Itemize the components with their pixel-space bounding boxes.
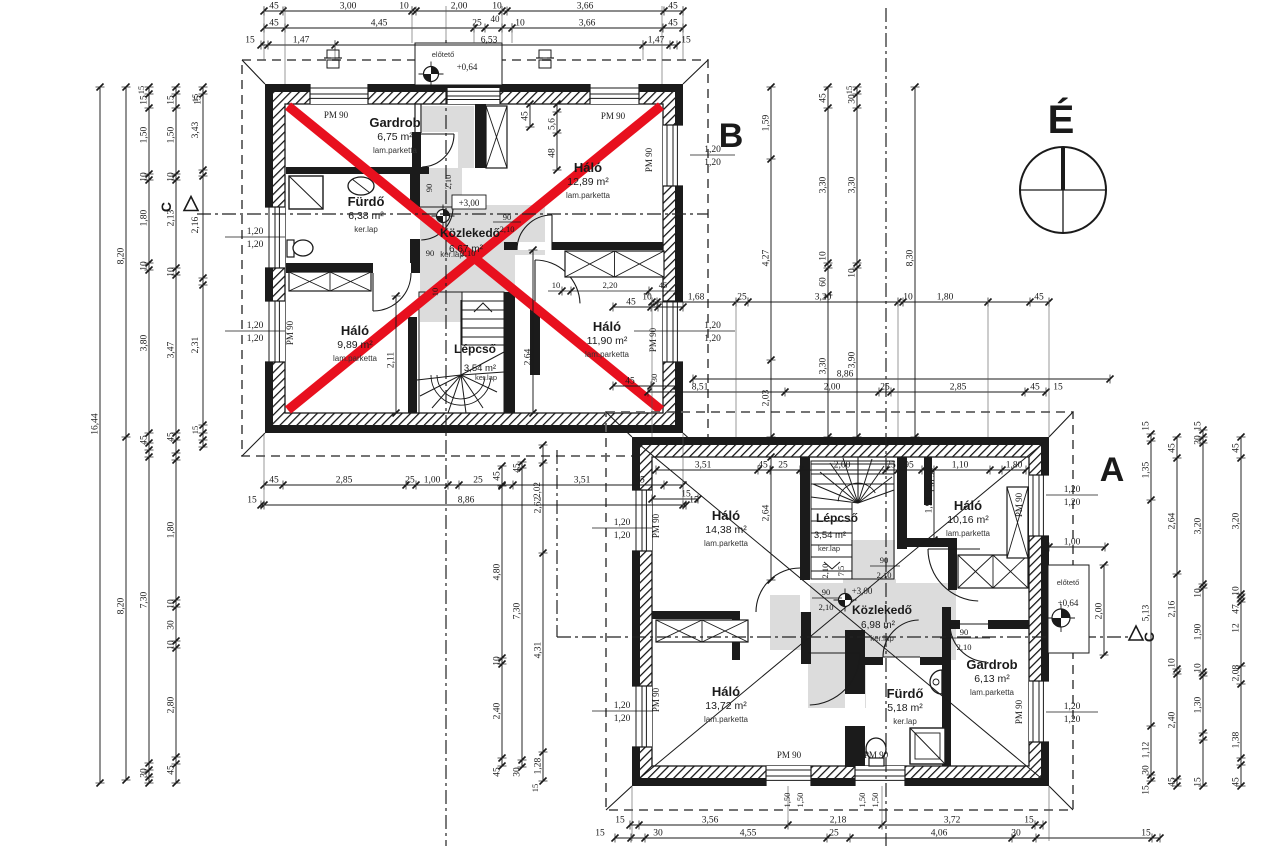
svg-text:lam.parketta: lam.parketta xyxy=(704,715,749,724)
svg-text:1,20: 1,20 xyxy=(1064,715,1081,725)
svg-text:10: 10 xyxy=(493,656,503,666)
svg-text:1,20: 1,20 xyxy=(1064,498,1081,508)
svg-text:2,31: 2,31 xyxy=(191,336,201,353)
svg-text:45: 45 xyxy=(269,19,279,29)
svg-text:1,50: 1,50 xyxy=(857,793,867,808)
svg-text:3,54 m²: 3,54 m² xyxy=(814,530,846,541)
svg-text:30: 30 xyxy=(649,374,659,383)
svg-text:1,20: 1,20 xyxy=(704,145,721,155)
svg-text:1,10: 1,10 xyxy=(952,461,969,471)
svg-text:1,00: 1,00 xyxy=(424,476,441,486)
svg-text:15: 15 xyxy=(190,426,200,435)
svg-text:45: 45 xyxy=(1168,777,1178,787)
svg-text:PM 90: PM 90 xyxy=(651,513,661,538)
svg-text:Gardrob: Gardrob xyxy=(966,657,1017,672)
svg-text:Háló: Háló xyxy=(593,319,621,334)
svg-text:2,02: 2,02 xyxy=(532,482,542,498)
svg-text:3,72: 3,72 xyxy=(944,816,961,826)
svg-text:PM 90: PM 90 xyxy=(777,750,802,760)
svg-text:8,20: 8,20 xyxy=(117,597,127,614)
svg-text:2,10: 2,10 xyxy=(500,224,515,234)
svg-text:Fürdő: Fürdő xyxy=(887,686,924,701)
svg-text:4,31: 4,31 xyxy=(534,641,544,658)
svg-text:30: 30 xyxy=(848,94,858,104)
svg-text:1,20: 1,20 xyxy=(704,321,721,331)
svg-text:1,20: 1,20 xyxy=(614,714,631,724)
svg-text:45: 45 xyxy=(1030,383,1040,393)
svg-text:5,13: 5,13 xyxy=(1142,604,1152,621)
svg-text:1,50: 1,50 xyxy=(795,793,805,808)
svg-text:3,66: 3,66 xyxy=(579,19,596,29)
svg-text:4,45: 4,45 xyxy=(371,19,388,29)
svg-text:1,80: 1,80 xyxy=(140,209,150,226)
svg-text:45: 45 xyxy=(819,93,829,103)
svg-text:ker.lap: ker.lap xyxy=(475,373,497,382)
svg-text:6,13 m²: 6,13 m² xyxy=(974,673,1010,685)
svg-text:45: 45 xyxy=(626,298,636,308)
svg-text:1,59: 1,59 xyxy=(762,114,772,131)
svg-text:1,50: 1,50 xyxy=(782,793,792,808)
svg-text:2,10: 2,10 xyxy=(461,248,476,258)
svg-text:10: 10 xyxy=(848,268,858,278)
svg-text:8,30: 8,30 xyxy=(906,249,916,266)
svg-text:Háló: Háló xyxy=(954,498,982,513)
svg-text:PM 90: PM 90 xyxy=(926,467,936,492)
svg-text:Lépcső: Lépcső xyxy=(816,511,858,525)
svg-text:Lépcső: Lépcső xyxy=(454,342,496,356)
svg-text:10,16 m²: 10,16 m² xyxy=(947,514,989,526)
svg-text:lam.parketta: lam.parketta xyxy=(704,539,749,548)
svg-text:2,10: 2,10 xyxy=(957,642,972,652)
svg-text:45: 45 xyxy=(1034,293,1044,303)
svg-text:45: 45 xyxy=(659,280,668,290)
svg-text:2,18: 2,18 xyxy=(830,816,847,826)
svg-text:1,00: 1,00 xyxy=(1064,538,1081,548)
svg-text:1,20: 1,20 xyxy=(247,240,264,250)
svg-text:3,51: 3,51 xyxy=(574,476,591,486)
svg-text:25: 25 xyxy=(886,461,896,471)
svg-text:1,30: 1,30 xyxy=(1194,696,1204,713)
svg-text:10: 10 xyxy=(1194,588,1204,598)
svg-text:45: 45 xyxy=(269,2,279,12)
svg-text:1,20: 1,20 xyxy=(1064,702,1081,712)
svg-text:1,20: 1,20 xyxy=(704,158,721,168)
svg-text:45: 45 xyxy=(1232,443,1242,453)
svg-text:lam.parketta: lam.parketta xyxy=(946,529,991,538)
svg-text:10: 10 xyxy=(167,599,177,609)
svg-text:48: 48 xyxy=(548,148,558,158)
svg-text:PM 90: PM 90 xyxy=(644,147,654,172)
svg-text:7,5: 7,5 xyxy=(836,566,846,577)
svg-text:3,20: 3,20 xyxy=(815,293,832,303)
svg-text:2,62: 2,62 xyxy=(534,496,544,513)
svg-text:45: 45 xyxy=(1232,777,1242,787)
svg-text:15: 15 xyxy=(615,816,625,826)
svg-text:2,11: 2,11 xyxy=(387,352,397,369)
svg-text:Közlekedő: Közlekedő xyxy=(852,603,912,617)
svg-text:30: 30 xyxy=(1142,765,1152,775)
svg-text:3,90: 3,90 xyxy=(848,351,858,368)
svg-text:2,20: 2,20 xyxy=(603,280,618,290)
svg-text:45: 45 xyxy=(167,432,177,442)
svg-text:2,10: 2,10 xyxy=(443,175,453,190)
svg-text:1,20: 1,20 xyxy=(614,701,631,711)
svg-text:3,30: 3,30 xyxy=(819,357,829,374)
svg-text:10: 10 xyxy=(399,2,409,12)
svg-text:10: 10 xyxy=(167,640,177,650)
svg-text:1,90: 1,90 xyxy=(925,496,935,513)
svg-text:60: 60 xyxy=(819,277,829,287)
svg-text:ker.lap: ker.lap xyxy=(870,634,894,643)
svg-text:3,56: 3,56 xyxy=(702,816,719,826)
svg-text:5,18 m²: 5,18 m² xyxy=(887,702,923,714)
svg-text:C: C xyxy=(1141,632,1157,642)
svg-text:10: 10 xyxy=(819,251,829,261)
svg-text:Háló: Háló xyxy=(341,323,369,338)
svg-text:90: 90 xyxy=(426,248,435,258)
svg-text:25: 25 xyxy=(405,476,415,486)
svg-text:1,50: 1,50 xyxy=(870,793,880,808)
svg-text:30: 30 xyxy=(653,829,663,839)
svg-text:2,80: 2,80 xyxy=(167,696,177,713)
svg-text:8,86: 8,86 xyxy=(458,496,475,506)
svg-text:45: 45 xyxy=(758,461,768,471)
svg-text:1,38: 1,38 xyxy=(1232,731,1242,748)
svg-text:1,20: 1,20 xyxy=(1064,485,1081,495)
svg-text:10: 10 xyxy=(492,2,502,12)
svg-text:10: 10 xyxy=(515,19,525,29)
svg-text:15: 15 xyxy=(167,95,177,105)
svg-text:1,12: 1,12 xyxy=(1142,741,1152,758)
svg-text:10: 10 xyxy=(903,293,913,303)
svg-text:2,00: 2,00 xyxy=(834,461,851,471)
svg-text:10: 10 xyxy=(167,267,177,277)
svg-text:15: 15 xyxy=(689,496,699,506)
svg-text:1,28: 1,28 xyxy=(534,757,544,774)
svg-text:15: 15 xyxy=(1194,421,1204,431)
svg-text:6,53: 6,53 xyxy=(481,36,498,46)
svg-text:2,13: 2,13 xyxy=(167,209,177,226)
svg-text:10: 10 xyxy=(1232,586,1242,596)
svg-text:4,06: 4,06 xyxy=(931,829,948,839)
svg-text:15: 15 xyxy=(136,86,146,95)
svg-text:1,20: 1,20 xyxy=(704,334,721,344)
svg-text:PM 90: PM 90 xyxy=(285,320,295,345)
svg-text:3,20: 3,20 xyxy=(1232,512,1242,529)
svg-text:4,55: 4,55 xyxy=(740,829,757,839)
svg-text:2,00: 2,00 xyxy=(1095,602,1105,619)
svg-text:10: 10 xyxy=(140,172,150,182)
svg-text:30: 30 xyxy=(1011,829,1021,839)
svg-text:PM 90: PM 90 xyxy=(601,111,626,121)
svg-text:1,50: 1,50 xyxy=(140,126,150,143)
svg-text:30: 30 xyxy=(1194,435,1204,445)
svg-text:7,30: 7,30 xyxy=(140,591,150,608)
svg-text:2,00: 2,00 xyxy=(451,2,468,12)
svg-text:15: 15 xyxy=(1053,383,1063,393)
svg-text:10: 10 xyxy=(552,280,561,290)
svg-text:47: 47 xyxy=(1232,604,1242,614)
svg-text:16,44: 16,44 xyxy=(91,413,101,435)
svg-text:előtető: előtető xyxy=(1057,578,1080,587)
svg-text:2,08: 2,08 xyxy=(1232,664,1242,681)
svg-text:lam.parketta: lam.parketta xyxy=(373,146,418,155)
svg-text:15: 15 xyxy=(1194,777,1204,787)
svg-text:45: 45 xyxy=(493,471,503,481)
svg-text:45: 45 xyxy=(521,111,531,121)
svg-text:15: 15 xyxy=(140,95,150,105)
svg-text:11,90 m²: 11,90 m² xyxy=(587,335,628,347)
svg-text:lam.parketta: lam.parketta xyxy=(333,354,378,363)
svg-text:2,85: 2,85 xyxy=(950,383,967,393)
svg-text:2,10: 2,10 xyxy=(819,602,834,612)
svg-text:90: 90 xyxy=(880,555,889,565)
svg-text:45: 45 xyxy=(493,767,503,777)
svg-text:45: 45 xyxy=(668,2,678,12)
svg-text:+3,00: +3,00 xyxy=(852,586,873,596)
svg-text:1,20: 1,20 xyxy=(247,334,264,344)
svg-text:1,20: 1,20 xyxy=(614,531,631,541)
svg-text:2,64: 2,64 xyxy=(762,504,772,521)
svg-text:Háló: Háló xyxy=(574,160,602,175)
svg-text:3,30: 3,30 xyxy=(819,176,829,193)
svg-text:12: 12 xyxy=(1232,623,1242,633)
svg-text:7,30: 7,30 xyxy=(513,602,523,619)
svg-text:6,75 m²: 6,75 m² xyxy=(377,131,413,143)
svg-text:6,98 m²: 6,98 m² xyxy=(861,620,896,631)
svg-text:1,80: 1,80 xyxy=(937,293,954,303)
svg-text:4,27: 4,27 xyxy=(762,249,772,266)
svg-text:2,64: 2,64 xyxy=(1168,512,1178,529)
svg-text:45: 45 xyxy=(635,476,645,486)
svg-text:90: 90 xyxy=(960,627,969,637)
svg-text:1,68: 1,68 xyxy=(688,293,705,303)
svg-text:3,66: 3,66 xyxy=(577,2,594,12)
svg-text:45: 45 xyxy=(1168,443,1178,453)
svg-text:15: 15 xyxy=(844,86,854,95)
svg-text:Háló: Háló xyxy=(712,508,740,523)
svg-text:PM 90: PM 90 xyxy=(1014,699,1024,724)
svg-text:45: 45 xyxy=(167,765,177,775)
svg-text:Háló: Háló xyxy=(712,684,740,699)
svg-text:1,90: 1,90 xyxy=(1194,623,1204,640)
svg-text:25: 25 xyxy=(778,461,788,471)
svg-text:2,64: 2,64 xyxy=(524,348,534,365)
svg-text:15: 15 xyxy=(595,829,605,839)
svg-text:1,50: 1,50 xyxy=(167,126,177,143)
svg-text:45: 45 xyxy=(269,476,279,486)
svg-text:45: 45 xyxy=(140,435,150,445)
svg-text:A: A xyxy=(1100,451,1125,489)
svg-text:PM 90: PM 90 xyxy=(1014,492,1024,517)
svg-text:5,6: 5,6 xyxy=(548,118,558,130)
svg-text:+0,64: +0,64 xyxy=(457,62,478,72)
svg-text:90: 90 xyxy=(424,184,434,193)
svg-text:2,10: 2,10 xyxy=(820,564,830,579)
svg-text:lam.parketta: lam.parketta xyxy=(585,350,630,359)
svg-text:ker.lap: ker.lap xyxy=(354,225,378,234)
svg-text:2,16: 2,16 xyxy=(1168,600,1178,617)
svg-text:15: 15 xyxy=(1142,785,1152,795)
svg-text:ker.lap: ker.lap xyxy=(818,544,840,553)
svg-text:90: 90 xyxy=(822,587,831,597)
svg-text:14,38 m²: 14,38 m² xyxy=(705,524,747,536)
svg-text:1,80: 1,80 xyxy=(167,521,177,538)
svg-text:30: 30 xyxy=(167,620,177,630)
svg-text:2,16: 2,16 xyxy=(191,216,201,233)
svg-text:15: 15 xyxy=(1142,421,1152,431)
svg-text:30: 30 xyxy=(140,768,150,778)
svg-text:1,20: 1,20 xyxy=(614,518,631,528)
svg-text:2,40: 2,40 xyxy=(1168,711,1178,728)
svg-text:Gardrob: Gardrob xyxy=(369,115,420,130)
svg-text:45: 45 xyxy=(625,377,635,387)
svg-text:3,00: 3,00 xyxy=(340,2,357,12)
svg-text:B: B xyxy=(719,117,744,155)
svg-text:8,86: 8,86 xyxy=(837,370,854,380)
svg-text:+3,00: +3,00 xyxy=(459,198,480,208)
svg-text:3,51: 3,51 xyxy=(695,461,712,471)
svg-text:9,89 m²: 9,89 m² xyxy=(337,339,373,351)
svg-text:15: 15 xyxy=(530,784,540,793)
svg-text:15: 15 xyxy=(247,496,257,506)
svg-text:10: 10 xyxy=(1194,663,1204,673)
svg-text:4,80: 4,80 xyxy=(493,563,503,580)
svg-text:1,20: 1,20 xyxy=(247,227,264,237)
svg-text:Közlekedő: Közlekedő xyxy=(440,226,500,240)
svg-text:13,72 m²: 13,72 m² xyxy=(705,700,747,712)
svg-text:25: 25 xyxy=(737,293,747,303)
svg-text:3,20: 3,20 xyxy=(1194,517,1204,534)
svg-text:6,38 m²: 6,38 m² xyxy=(348,210,384,222)
svg-text:PM 90: PM 90 xyxy=(864,750,889,760)
svg-text:2,85: 2,85 xyxy=(336,476,353,486)
svg-text:10: 10 xyxy=(430,288,440,297)
svg-text:40: 40 xyxy=(491,14,501,24)
svg-text:10: 10 xyxy=(1168,658,1178,668)
svg-text:15: 15 xyxy=(1141,829,1151,839)
svg-text:25: 25 xyxy=(473,476,483,486)
svg-text:Fürdő: Fürdő xyxy=(348,194,385,209)
svg-text:10: 10 xyxy=(167,172,177,182)
svg-text:45: 45 xyxy=(513,463,523,473)
svg-text:1,20: 1,20 xyxy=(247,321,264,331)
svg-text:3,80: 3,80 xyxy=(140,334,150,351)
svg-text:3,30: 3,30 xyxy=(848,176,858,193)
svg-text:É: É xyxy=(1048,97,1075,142)
svg-text:1,47: 1,47 xyxy=(293,36,310,46)
svg-text:15: 15 xyxy=(190,94,200,103)
svg-text:30: 30 xyxy=(513,767,523,777)
svg-text:lam.parketta: lam.parketta xyxy=(566,191,611,200)
svg-text:3,43: 3,43 xyxy=(191,121,201,138)
svg-text:12,89 m²: 12,89 m² xyxy=(567,176,609,188)
svg-text:45: 45 xyxy=(668,19,678,29)
svg-text:PM 90: PM 90 xyxy=(324,110,349,120)
svg-text:1,35: 1,35 xyxy=(1142,461,1152,478)
svg-text:8,51: 8,51 xyxy=(692,383,709,393)
svg-text:10: 10 xyxy=(140,261,150,271)
svg-text:15: 15 xyxy=(1024,816,1034,826)
svg-text:3,47: 3,47 xyxy=(167,341,177,358)
svg-text:ker.lap: ker.lap xyxy=(893,717,917,726)
svg-text:2,40: 2,40 xyxy=(493,702,503,719)
svg-text:előtető: előtető xyxy=(432,50,455,59)
svg-text:25: 25 xyxy=(880,383,890,393)
svg-text:2,10: 2,10 xyxy=(877,570,892,580)
svg-text:PM 90: PM 90 xyxy=(651,687,661,712)
svg-text:lam.parketta: lam.parketta xyxy=(970,688,1015,697)
svg-text:95: 95 xyxy=(904,461,914,471)
svg-text:25: 25 xyxy=(829,829,839,839)
svg-text:10: 10 xyxy=(642,293,652,303)
svg-text:15: 15 xyxy=(245,36,255,46)
svg-text:1,80: 1,80 xyxy=(1006,461,1023,471)
svg-text:8,20: 8,20 xyxy=(117,247,127,264)
svg-text:2,00: 2,00 xyxy=(824,383,841,393)
